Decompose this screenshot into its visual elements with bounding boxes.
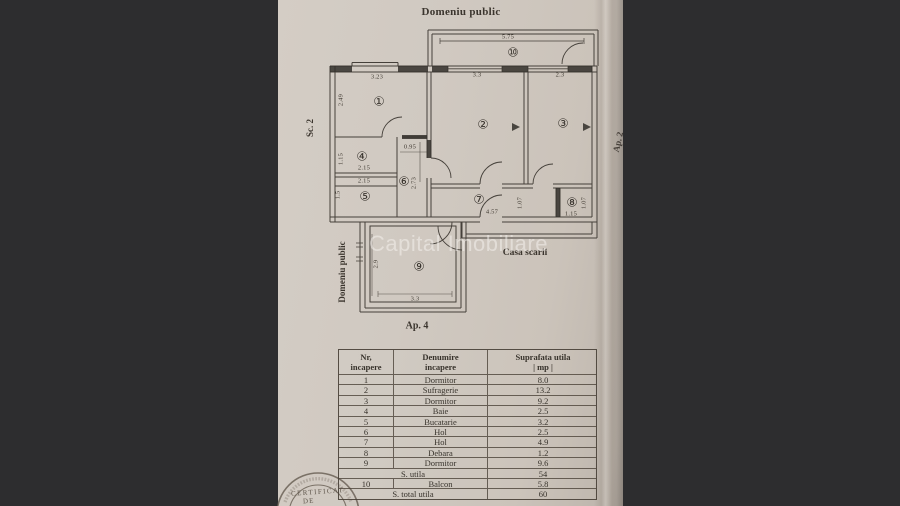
table-cell: S. utila: [339, 469, 488, 478]
table-row: 10Balcon5.8: [339, 478, 596, 488]
table-body: 1Dormitor8.02Sufragerie13.23Dormitor9.24…: [339, 374, 596, 499]
header-line: Suprafata utila: [488, 352, 598, 362]
header-line: Nr,: [339, 352, 393, 362]
table-cell: 60: [488, 489, 598, 498]
table-header: Nr, incapere Denumire incapere Suprafata…: [339, 350, 596, 374]
table-cell: Baie: [394, 406, 488, 415]
table-cell: 9.6: [488, 458, 598, 467]
header-line: | mp |: [488, 362, 598, 372]
header-line: incapere: [339, 362, 393, 372]
table-row: S. utila54: [339, 468, 596, 478]
table-cell: 54: [488, 469, 598, 478]
screenshot-root: Domeniu publicSc. 2Ap. 2Casa scariiDomen…: [0, 0, 900, 506]
table-header-nr: Nr, incapere: [339, 350, 394, 374]
table-cell: 2.5: [488, 427, 598, 436]
table-cell: 5.8: [488, 479, 598, 488]
table-row: S. total utila60: [339, 488, 596, 498]
header-line: incapere: [394, 362, 487, 372]
table-cell: Hol: [394, 427, 488, 436]
table-header-denumire: Denumire incapere: [394, 350, 488, 374]
table-cell: Dormitor: [394, 375, 488, 384]
table-cell: 4: [339, 406, 394, 415]
table-cell: 10: [339, 479, 394, 488]
table-cell: Bucatarie: [394, 417, 488, 426]
table-cell: 9: [339, 458, 394, 467]
table-cell: Sufragerie: [394, 385, 488, 394]
table-cell: 1: [339, 375, 394, 384]
table-cell: 1.2: [488, 448, 598, 457]
table-cell: 13.2: [488, 385, 598, 394]
table-cell: Balcon: [394, 479, 488, 488]
table-row: 6Hol2.5: [339, 426, 596, 436]
table-row: 5Bucatarie3.2: [339, 416, 596, 426]
areas-table: Nr, incapere Denumire incapere Suprafata…: [338, 349, 597, 500]
table-cell: Debara: [394, 448, 488, 457]
table-row: 8Debara1.2: [339, 447, 596, 457]
table-cell: 8.0: [488, 375, 598, 384]
table-row: 2Sufragerie13.2: [339, 384, 596, 394]
table-row: 4Baie2.5: [339, 405, 596, 415]
table-cell: 8: [339, 448, 394, 457]
table-cell: 6: [339, 427, 394, 436]
table-cell: 2.5: [488, 406, 598, 415]
header-line: Denumire: [394, 352, 487, 362]
table-cell: 5: [339, 417, 394, 426]
table-cell: 3.2: [488, 417, 598, 426]
table-cell: Hol: [394, 437, 488, 446]
table-cell: 9.2: [488, 396, 598, 405]
table-row: 7Hol4.9: [339, 436, 596, 446]
table-header-suprafata: Suprafata utila | mp |: [488, 350, 598, 374]
table-cell: 7: [339, 437, 394, 446]
stamp-line-2: DE: [303, 497, 315, 506]
table-cell: Dormitor: [394, 458, 488, 467]
table-cell: Dormitor: [394, 396, 488, 405]
table-row: 1Dormitor8.0: [339, 374, 596, 384]
table-row: 3Dormitor9.2: [339, 395, 596, 405]
table-cell: S. total utila: [339, 489, 488, 498]
table-cell: 2: [339, 385, 394, 394]
table-cell: 4.9: [488, 437, 598, 446]
table-cell: 3: [339, 396, 394, 405]
table-row: 9Dormitor9.6: [339, 457, 596, 467]
watermark: Capital Imobiliare: [369, 231, 548, 257]
